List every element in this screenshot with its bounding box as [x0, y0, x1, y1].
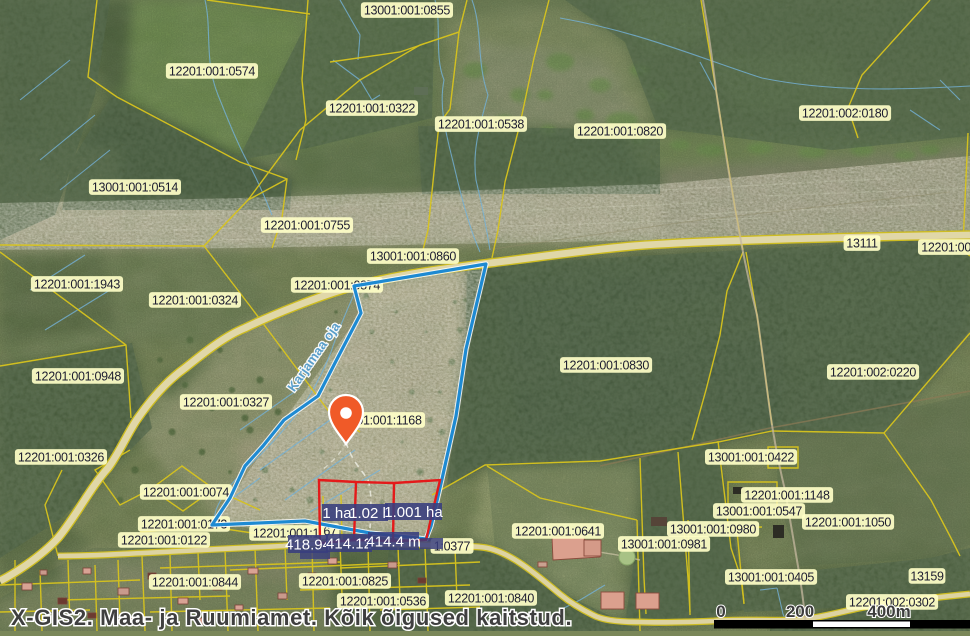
svg-text:13001:001:0860: 13001:001:0860: [370, 250, 457, 264]
svg-text:12201:002:0220: 12201:002:0220: [830, 366, 917, 380]
svg-text:13159: 13159: [910, 570, 944, 584]
svg-text:12201:001:0538: 12201:001:0538: [438, 118, 525, 132]
svg-text:12201:001:0574: 12201:001:0574: [169, 65, 256, 79]
svg-text:414.4 m: 414.4 m: [366, 533, 420, 550]
svg-text:12201:001:0326: 12201:001:0326: [18, 451, 105, 465]
svg-text:12201:001:0327: 12201:001:0327: [183, 396, 270, 410]
svg-text:12201:001:0830: 12201:001:0830: [563, 359, 650, 373]
svg-text:12201:002:0180: 12201:002:0180: [802, 107, 889, 121]
svg-text:1 ha: 1 ha: [322, 505, 352, 522]
svg-text:12201:001:0122: 12201:001:0122: [121, 534, 208, 548]
svg-text:12201:001:0840: 12201:001:0840: [448, 592, 535, 606]
svg-text:12201:001:0755: 12201:001:0755: [264, 219, 351, 233]
svg-text:12201:001:0820: 12201:001:0820: [577, 125, 664, 139]
svg-text:13001:001:0514: 13001:001:0514: [92, 181, 179, 195]
svg-text:418.94: 418.94: [285, 536, 331, 553]
svg-text:13001:001:0980: 13001:001:0980: [670, 523, 757, 537]
svg-text:13001:001:0422: 13001:001:0422: [708, 451, 795, 465]
svg-text:X-GIS2. Maa- ja Ruumiamet. Kõi: X-GIS2. Maa- ja Ruumiamet. Kõik õigused …: [11, 605, 572, 630]
svg-text:12201:001:0322: 12201:001:0322: [329, 102, 416, 116]
svg-text:12201:001:0825: 12201:001:0825: [302, 575, 389, 589]
svg-text:12201:001:0324: 12201:001:0324: [152, 294, 239, 308]
svg-text:12201:001:1148: 12201:001:1148: [744, 489, 830, 503]
svg-text:12201:001:1943: 12201:001:1943: [34, 278, 121, 292]
svg-text:1.001 ha: 1.001 ha: [384, 504, 443, 521]
svg-text:13001:001:0405: 13001:001:0405: [728, 571, 815, 585]
svg-text:13001:001:0855: 13001:001:0855: [364, 4, 451, 18]
svg-text:13111: 13111: [846, 237, 878, 251]
svg-text:13001:001:0981: 13001:001:0981: [621, 538, 708, 552]
svg-text:12201:001:0641: 12201:001:0641: [515, 525, 602, 539]
svg-text:200: 200: [786, 602, 814, 621]
svg-text:0: 0: [716, 602, 725, 621]
svg-text:12201:001:0844: 12201:001:0844: [152, 576, 239, 590]
svg-text:12201:001:1050: 12201:001:1050: [805, 516, 892, 530]
svg-text:12201:001:0948: 12201:001:0948: [35, 370, 122, 384]
svg-text:400m: 400m: [867, 602, 910, 621]
svg-text:13001:001:0547: 13001:001:0547: [716, 505, 803, 519]
svg-text:12201:001:0074: 12201:001:0074: [143, 486, 230, 500]
svg-text:12201:002:018: 12201:002:018: [921, 241, 970, 255]
svg-text:414.12: 414.12: [326, 535, 372, 552]
